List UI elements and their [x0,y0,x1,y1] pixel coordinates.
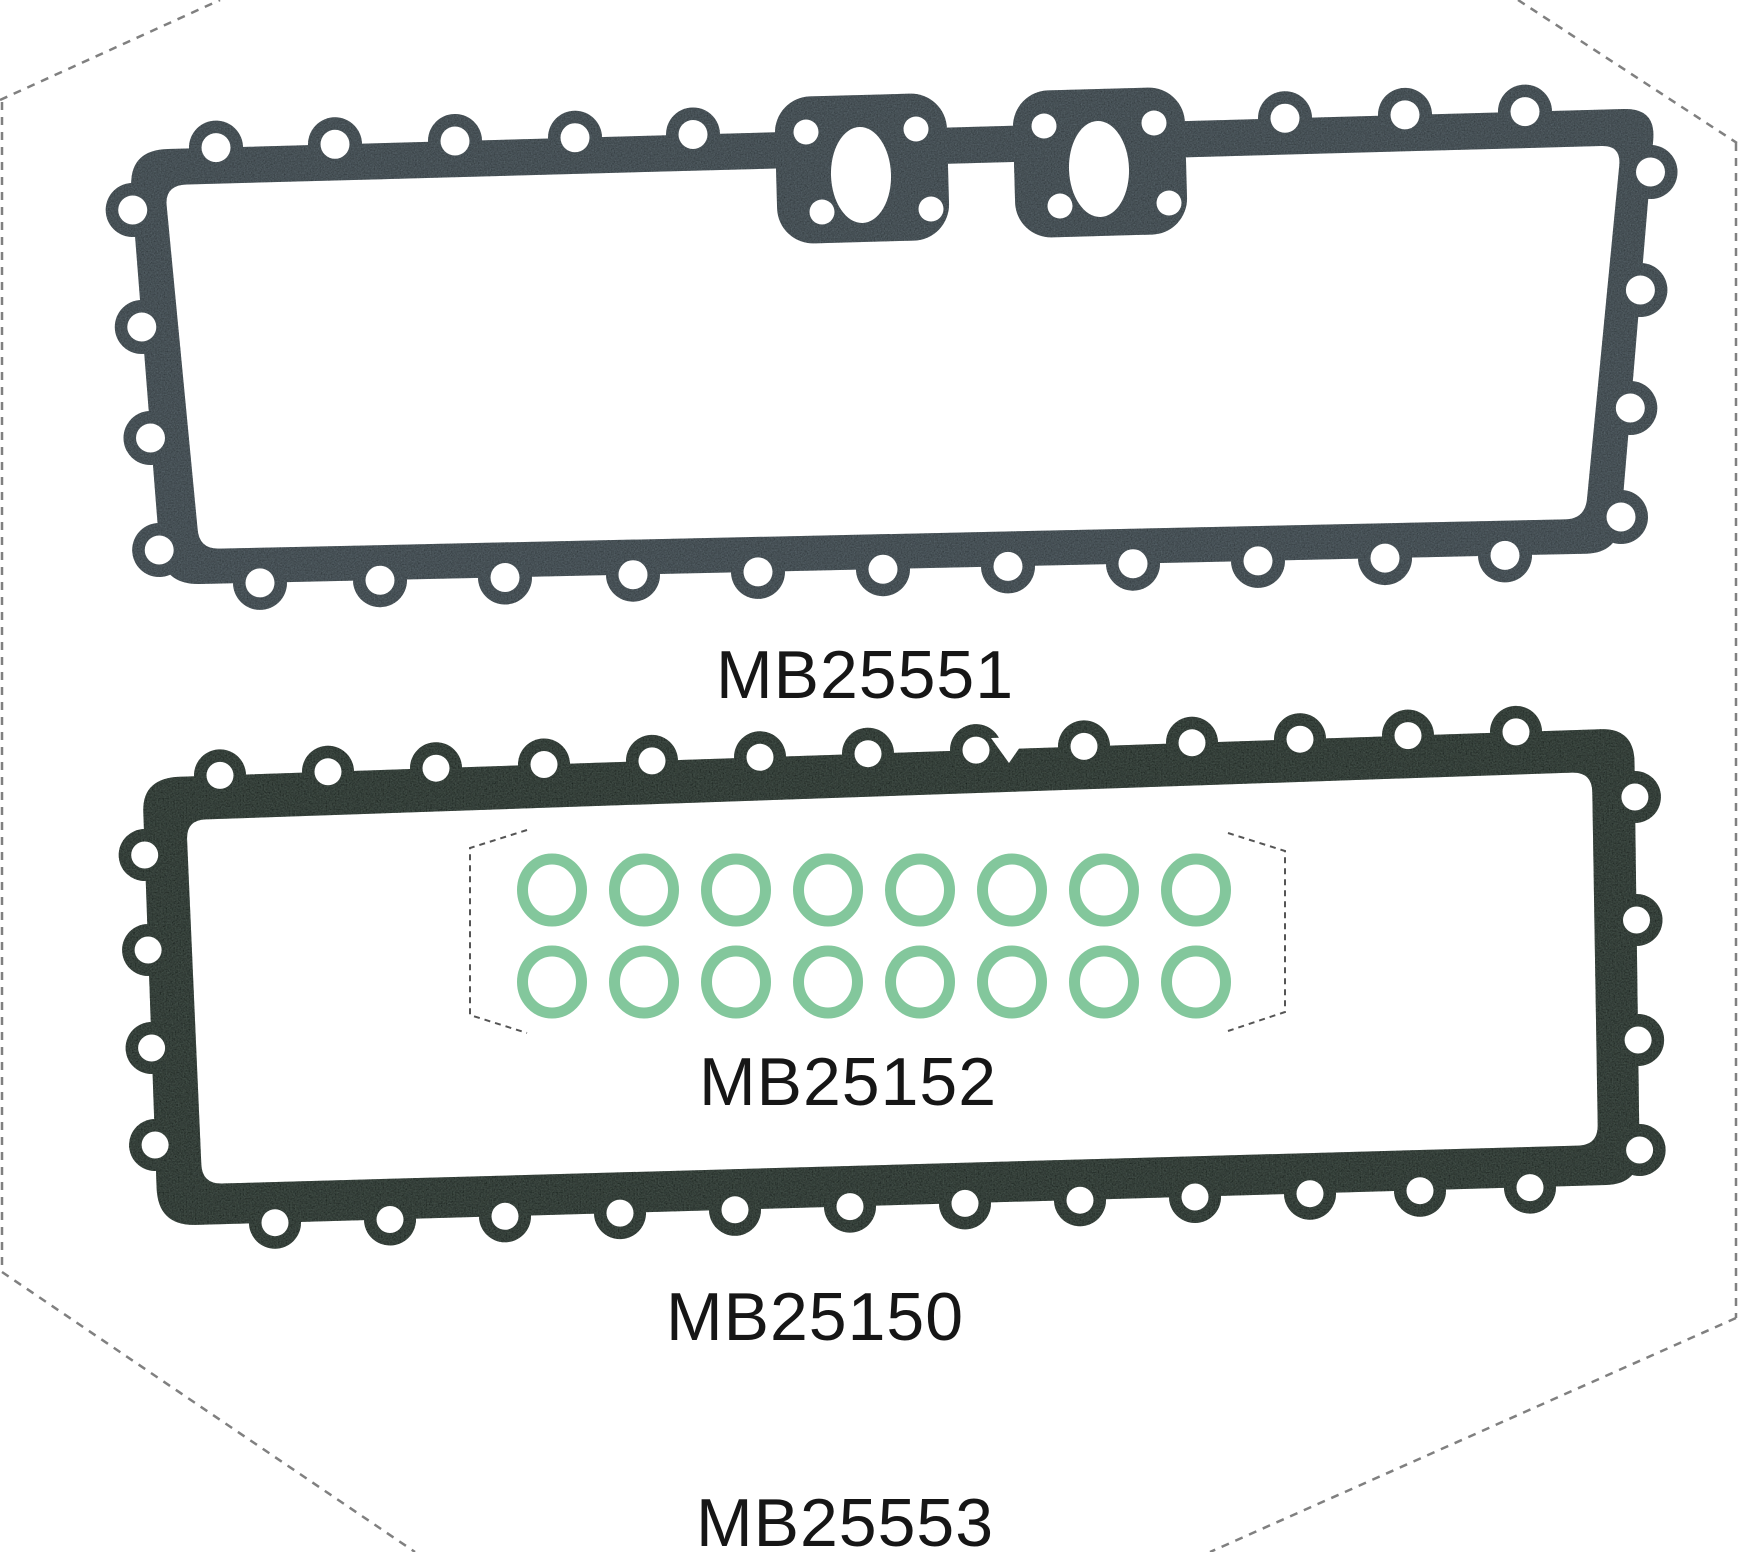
oring-region-outline [470,830,1285,1033]
part-number-label-figure-set: MB25553 [696,1485,994,1552]
crop-outline-top-left-diagonal [0,0,220,100]
oring-region-left-bracket [470,830,527,1033]
part-number-label-bottom-gasket: MB25150 [666,1279,964,1355]
crop-outline-bottom-right-diagonal [1210,1318,1736,1552]
oring-region-right-bracket [1228,833,1285,1031]
catalog-figure: MB25551 MB25152 MB25150 MB25553 [0,0,1738,1552]
part-number-label-oring-set: MB25152 [699,1044,997,1120]
part-number-label-top-gasket: MB25551 [716,637,1014,713]
gasket-illustration-mb25551 [106,85,1678,610]
oring-set-illustration [523,859,1226,1013]
crop-outline-bottom-left-diagonal [2,1272,415,1552]
catalog-page: MB25551 MB25152 MB25150 MB25553 [0,0,1738,1552]
